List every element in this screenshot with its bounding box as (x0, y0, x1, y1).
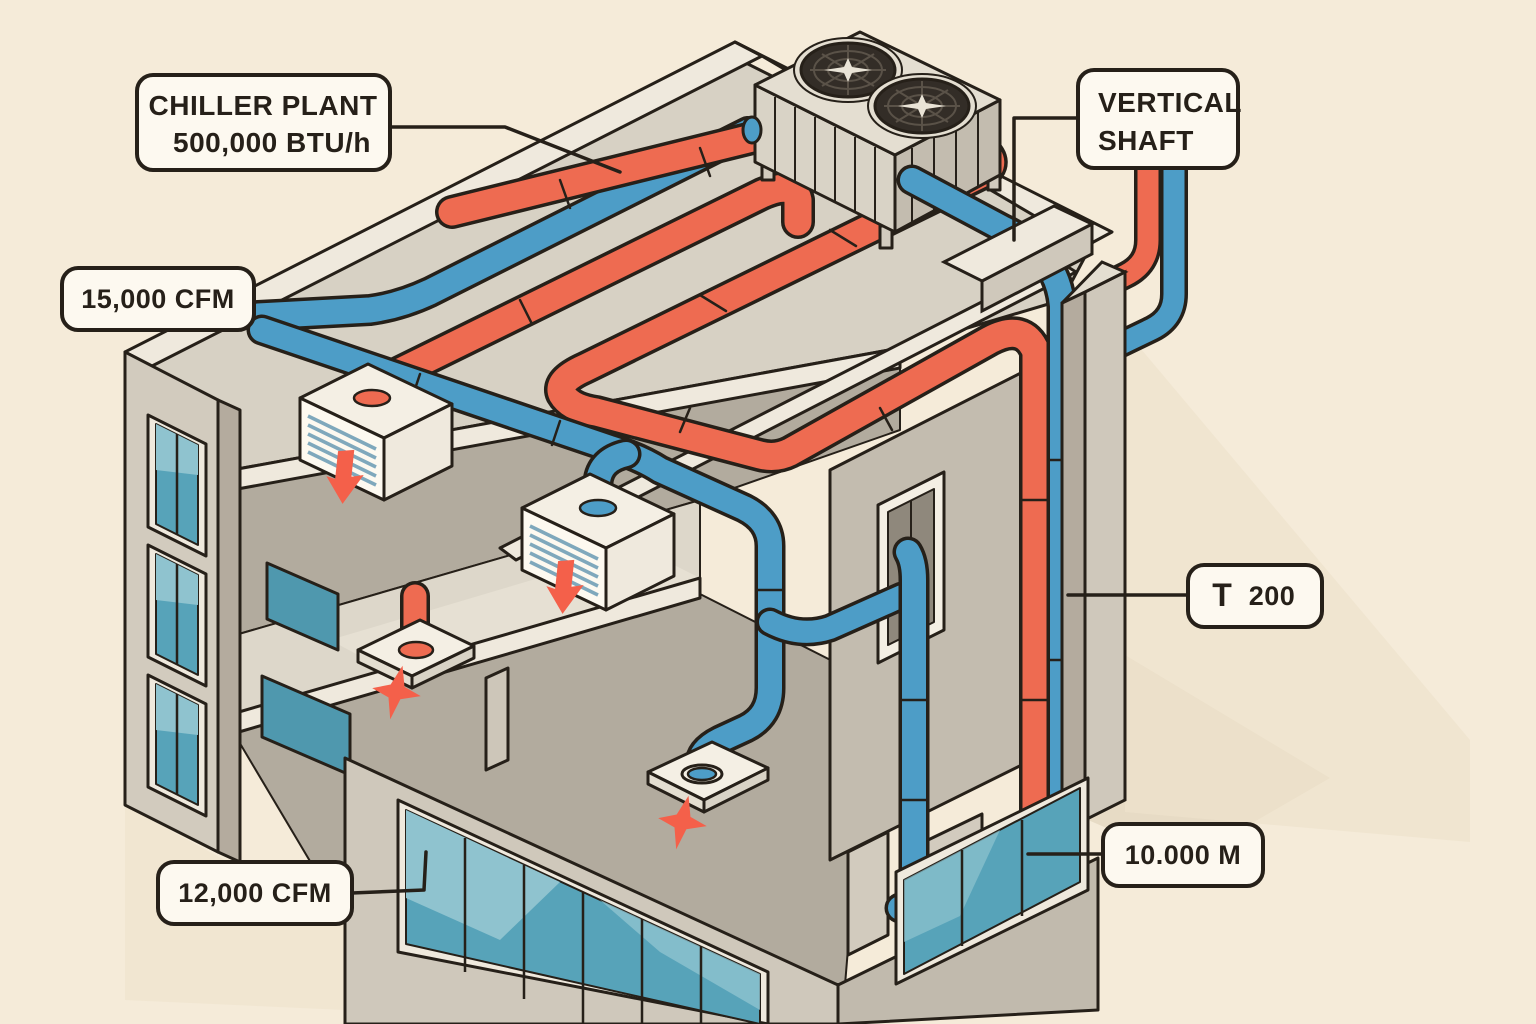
thermometer-t-icon: T (1212, 577, 1232, 613)
t200-label: T 200 (1188, 565, 1322, 627)
diagram-canvas: CHILLER PLANT 500,000 BTU/h VERTICAL SHA… (0, 0, 1536, 1024)
t200-value: 200 (1249, 581, 1296, 611)
hvac-diagram: CHILLER PLANT 500,000 BTU/h VERTICAL SHA… (0, 0, 1536, 1024)
supply-cfm-label: 15,000 CFM (62, 268, 254, 330)
left-facade-pillar (125, 352, 240, 862)
chiller-plant-label: CHILLER PLANT 500,000 BTU/h (137, 75, 390, 170)
return-cfm-label: 12,000 CFM (158, 862, 352, 924)
meters-value: 10.000 M (1125, 840, 1242, 870)
chiller-fan-2 (868, 74, 976, 138)
vertical-shaft-label: VERTICAL SHAFT (1078, 70, 1242, 168)
meters-label: 10.000 M (1103, 824, 1263, 886)
supply-cfm-value: 15,000 CFM (81, 284, 235, 314)
chiller-blue-port (743, 117, 761, 143)
vertical-shaft-label-line1: VERTICAL (1098, 87, 1242, 118)
chiller-plant-label-line1: CHILLER PLANT (149, 90, 378, 121)
chiller-plant-label-line2: 500,000 BTU/h (173, 127, 371, 158)
vertical-shaft-label-line2: SHAFT (1098, 125, 1194, 156)
return-cfm-value: 12,000 CFM (178, 878, 332, 908)
vertical-shaft-column (1062, 262, 1125, 831)
interior-column (486, 668, 508, 770)
